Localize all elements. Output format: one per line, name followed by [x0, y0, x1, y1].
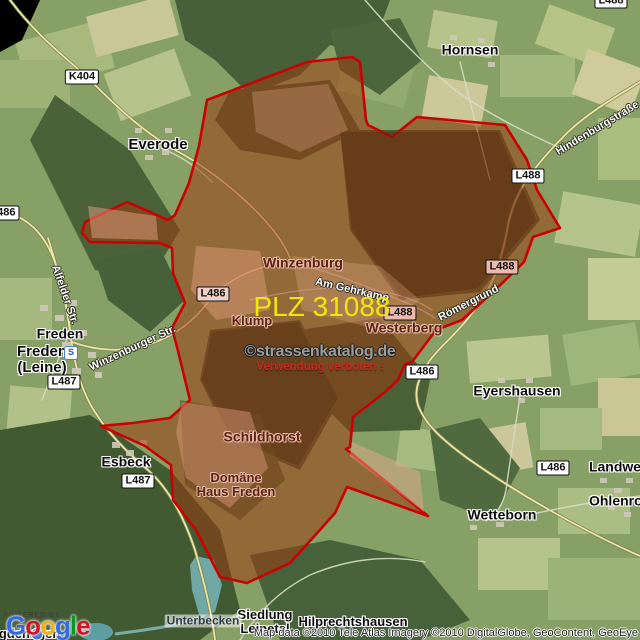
google-logo-letter-2: o	[40, 611, 55, 640]
hamlet-label-winzenburg: Winzenburg	[263, 255, 343, 270]
hamlet-label-domaene-haus-freden: Domäne Haus Freden	[197, 471, 276, 499]
road-shield-l487-esbeck: L487	[121, 474, 154, 489]
town-label-ohlenrode: Ohlenrode	[589, 493, 640, 508]
google-logo-letter-3: g	[55, 611, 70, 640]
water-label-unterbecken: Unterbecken	[165, 615, 242, 628]
road-shield-l488-mid: L488	[485, 260, 518, 275]
street-label-winzenburger-str: Winzenburger Str.	[88, 324, 178, 375]
google-logo-letter-1: o	[25, 611, 40, 640]
google-logo-letter-5: e	[76, 611, 89, 640]
google-logo[interactable]: Google	[6, 611, 90, 640]
town-label-hornsen: Hornsen	[442, 42, 499, 57]
map-viewport[interactable]: HornsenEverodeFredenFreden (Leine)Esbeck…	[0, 0, 640, 640]
road-shield-l486-west: L486	[0, 206, 20, 221]
road-shield-k404: K404	[65, 70, 99, 85]
town-label-landwehr: Landwehr	[589, 459, 640, 474]
street-label-alfelder-str: Alfelder Str.	[48, 264, 79, 326]
town-label-eyershausen: Eyershausen	[473, 383, 560, 398]
town-label-freden-leine: Freden (Leine)	[17, 344, 67, 376]
town-label-wetteborn: Wetteborn	[468, 507, 537, 522]
road-shield-l486-east: L486	[405, 365, 438, 380]
plz-region-label: PLZ 31088	[254, 291, 391, 323]
road-shield-l486-southeast: L486	[536, 461, 569, 476]
google-logo-letter-0: G	[6, 611, 25, 640]
hamlet-label-schildhorst: Schildhorst	[223, 429, 300, 444]
road-shield-l486-mid: L486	[196, 287, 229, 302]
map-attribution: Map data ©2010 Tele Atlas Imagery ©2010 …	[254, 627, 638, 639]
train-station-icon: S	[64, 346, 78, 360]
town-label-everode: Everode	[128, 137, 187, 153]
town-label-esbeck: Esbeck	[101, 454, 150, 469]
street-label-hindenburgstrasse: Hindenburgstraße	[554, 100, 640, 159]
street-label-roemergrund: Römergrund	[437, 284, 501, 325]
town-label-freden: Freden	[37, 326, 84, 341]
road-shield-l487-freden: L487	[47, 375, 80, 390]
road-shield-l488-top: L488	[594, 0, 627, 9]
road-shield-l488-north: L488	[511, 169, 544, 184]
